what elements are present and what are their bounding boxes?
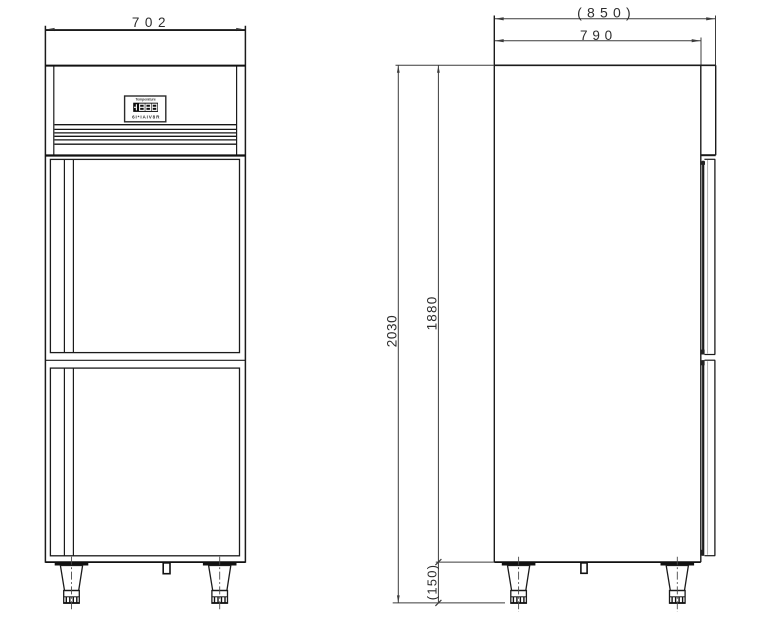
svg-text:1880: 1880: [425, 296, 440, 331]
svg-text:702: 702: [132, 15, 171, 30]
svg-text:2030: 2030: [384, 315, 399, 347]
svg-text:Temperature: Temperature: [135, 98, 155, 102]
svg-text:6I*IAIV8R: 6I*IAIV8R: [132, 115, 160, 120]
svg-text:790: 790: [580, 28, 617, 43]
svg-text:(850): (850): [577, 5, 636, 21]
svg-text:(150): (150): [425, 564, 440, 600]
